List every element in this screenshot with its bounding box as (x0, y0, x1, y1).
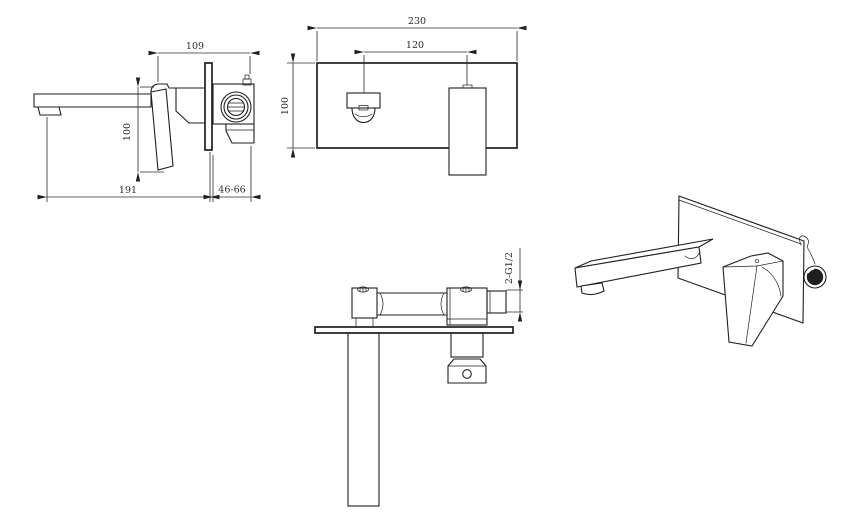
block-foot-left (356, 318, 373, 327)
mounting-block-left-top (352, 288, 377, 318)
top-view: 2-G1/2 (315, 248, 523, 506)
dim-label-plate-width: 230 (408, 16, 426, 27)
wall-plate-top (315, 327, 513, 333)
dim-label-side-reach: 191 (119, 185, 137, 196)
handle-set-screw-hole (463, 370, 472, 379)
aerator-side (38, 107, 61, 115)
handle-front (449, 88, 486, 175)
dim-label-center-distance: 120 (406, 40, 424, 51)
side-view: 109 100 191 46-66 (34, 41, 254, 202)
dim-label-plate-height: 100 (280, 97, 291, 115)
cylinder-end-arcs (380, 293, 444, 315)
dim-label-thread-spec: 2-G1/2 (504, 252, 515, 284)
technical-drawing-page: 109 100 191 46-66 230 (0, 0, 860, 528)
mounting-block-right-top (447, 288, 487, 325)
wall-plate-side (205, 63, 212, 150)
perspective-view (575, 196, 826, 346)
dim-label-side-wall-depth: 46-66 (218, 185, 245, 196)
handle-block-top (448, 359, 486, 383)
spout-side (34, 94, 151, 107)
screw-stem-side (245, 75, 249, 79)
spout-top (348, 333, 379, 506)
valve-body-front-side (176, 88, 206, 123)
outlet-fitting-side (226, 124, 254, 143)
thread-hatch (228, 103, 245, 111)
dim-label-side-width: 109 (186, 41, 204, 52)
front-view: 230 120 100 (280, 16, 517, 175)
technical-drawing-canvas: 109 100 191 46-66 230 (0, 0, 860, 528)
lever-arm-side (151, 89, 173, 170)
dim-label-side-height: 100 (122, 123, 133, 141)
handle-column-top (451, 333, 483, 357)
